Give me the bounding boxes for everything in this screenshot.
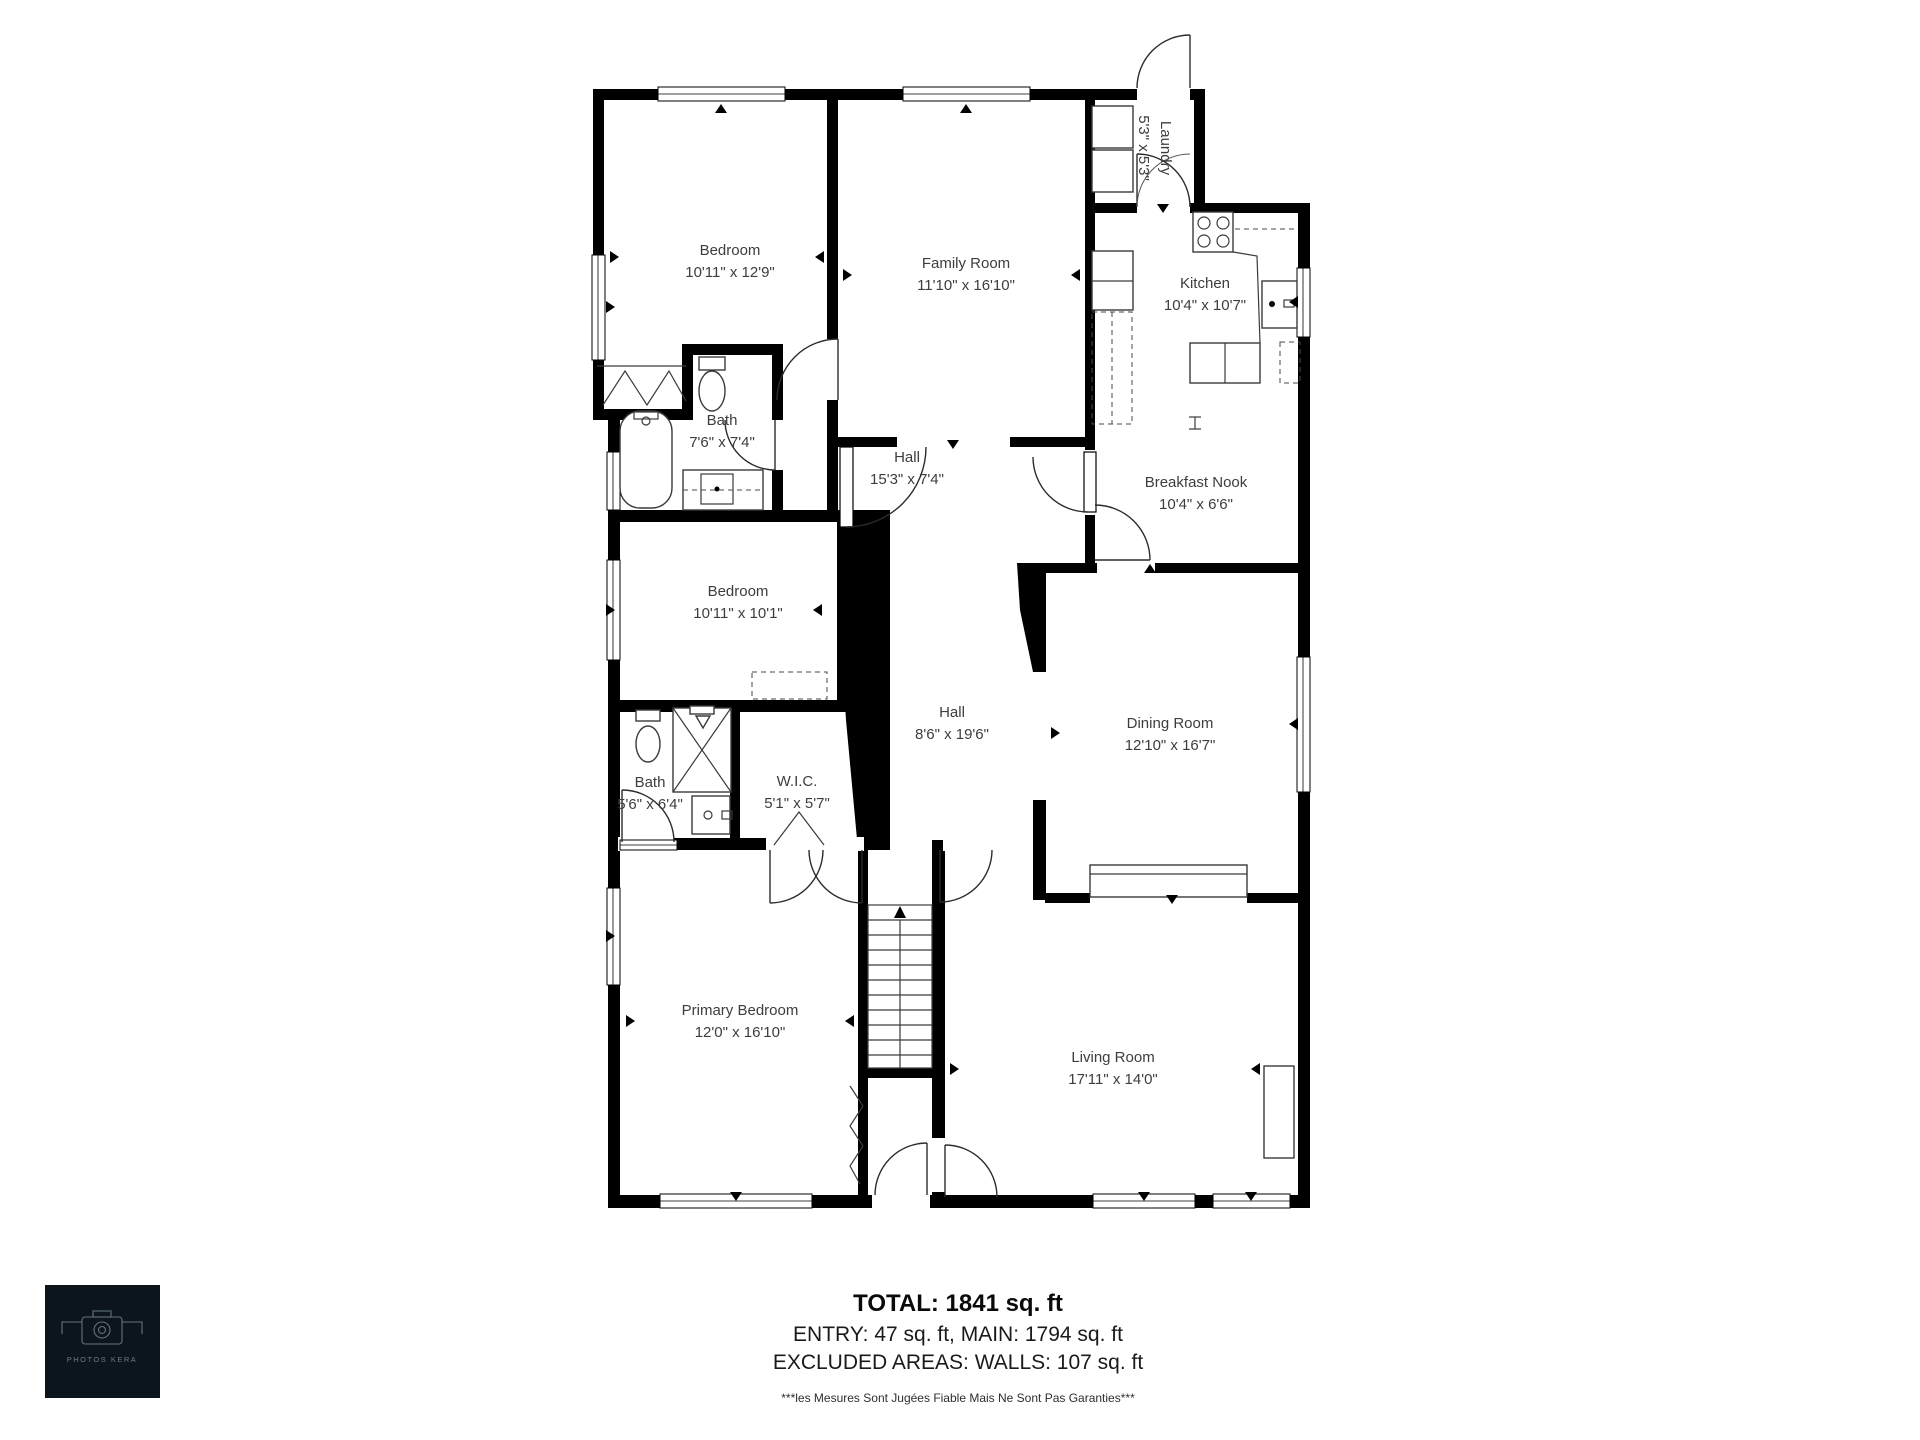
nook-door [1095, 505, 1150, 560]
nook-hall-door [1033, 452, 1096, 512]
toilet-icon [699, 357, 725, 411]
fireplace [1264, 1066, 1294, 1158]
label-breakfast-nook-dims: 10'4" x 6'6" [1159, 496, 1233, 513]
sofa [1090, 865, 1247, 897]
front-door [875, 1143, 927, 1195]
label-hall-lower-name: Hall [939, 704, 965, 721]
label-primary-bedroom-name: Primary Bedroom [682, 1002, 799, 1019]
label-bath-lower-name: Bath [635, 774, 666, 791]
entry-door-top [1137, 35, 1190, 88]
hall-living-door [940, 850, 992, 902]
label-wic-dims: 5'1" x 5'7" [764, 795, 830, 812]
label-wic-name: W.I.C. [777, 773, 818, 790]
summary-total: TOTAL: 1841 sq. ft [853, 1290, 1063, 1317]
label-bedroom-1-name: Bedroom [700, 242, 761, 259]
label-bath-upper-dims: 7'6" x 7'4" [689, 434, 755, 451]
stove-icon [1193, 212, 1297, 252]
closet-dashed [752, 672, 827, 699]
nook-table [1190, 342, 1300, 383]
window [658, 87, 785, 101]
label-hall-lower-dims: 8'6" x 19'6" [915, 726, 989, 743]
window-halfwall [620, 840, 677, 850]
washer-dryer-icon [1092, 106, 1133, 192]
vanity-sink-icon [683, 470, 763, 510]
label-family-room-name: Family Room [922, 255, 1010, 272]
closet-rod-icon [597, 366, 686, 405]
label-breakfast-nook-name: Breakfast Nook [1145, 474, 1248, 491]
window [1297, 657, 1310, 792]
kitchen-sink-icon [1262, 281, 1297, 328]
summary: TOTAL: 1841 sq. ft ENTRY: 47 sq. ft, MAI… [773, 1290, 1144, 1405]
stairs [868, 905, 932, 1068]
label-dining-room-name: Dining Room [1127, 715, 1214, 732]
window [592, 255, 605, 360]
label-living-room-name: Living Room [1071, 1049, 1154, 1066]
label-kitchen-dims: 10'4" x 10'7" [1164, 297, 1246, 314]
entry-living-door [945, 1145, 997, 1197]
label-primary-bedroom-dims: 12'0" x 16'10" [695, 1024, 786, 1041]
disclaimer: ***les Mesures Sont Jugées Fiable Mais N… [781, 1391, 1135, 1405]
label-laundry-name: Laundry [1157, 121, 1174, 176]
floor-plan: Bedroom 10'11" x 12'9" Family Room 11'10… [0, 0, 1920, 1440]
label-laundry-dims: 5'3" x 5'3" [1135, 115, 1152, 181]
label-bedroom-1-dims: 10'11" x 12'9" [685, 264, 775, 281]
label-bath-upper-name: Bath [707, 412, 738, 429]
bathtub-icon [620, 411, 672, 508]
label-hall-upper-name: Hall [894, 449, 920, 466]
sink-icon [692, 796, 732, 834]
label-living-room-dims: 17'11" x 14'0" [1068, 1071, 1158, 1088]
label-dining-room-dims: 12'10" x 16'7" [1125, 737, 1216, 754]
primary-door-right [809, 850, 862, 903]
kitchen-cabinets [1092, 251, 1133, 424]
shower-icon [673, 706, 731, 792]
window [607, 452, 620, 510]
window [903, 87, 1030, 101]
logo: PHOTOS KERA [45, 1285, 160, 1398]
primary-door-left [770, 850, 823, 903]
label-bedroom-2-dims: 10'11" x 10'1" [693, 605, 783, 622]
window [1297, 268, 1310, 337]
toilet-icon [636, 710, 660, 762]
summary-breakdown: ENTRY: 47 sq. ft, MAIN: 1794 sq. ft [793, 1323, 1123, 1346]
logo-brand: PHOTOS KERA [67, 1355, 138, 1364]
label-family-room-dims: 11'10" x 16'10" [917, 277, 1015, 294]
label-laundry: Laundry 5'3" x 5'3" [1135, 115, 1174, 181]
label-hall-upper-dims: 15'3" x 7'4" [870, 471, 944, 488]
label-bedroom-2-name: Bedroom [708, 583, 769, 600]
label-bath-lower-dims: 5'6" x 6'4" [617, 796, 683, 813]
summary-excluded: EXCLUDED AREAS: WALLS: 107 sq. ft [773, 1351, 1144, 1374]
nook-symbol [1189, 417, 1201, 429]
logo-background [45, 1285, 160, 1398]
label-kitchen-name: Kitchen [1180, 275, 1230, 292]
